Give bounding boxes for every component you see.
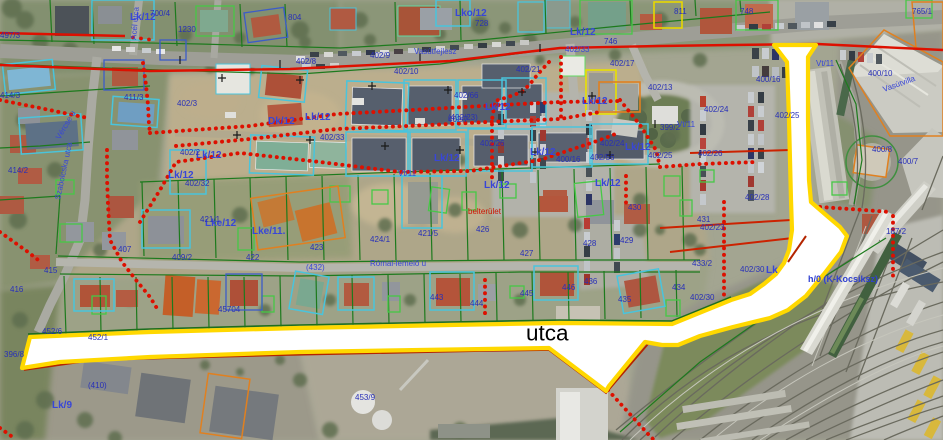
svg-text:Lk/9: Lk/9 (52, 400, 72, 411)
svg-text:Lk/12: Lk/12 (305, 112, 331, 123)
svg-text:400/16: 400/16 (556, 155, 581, 164)
svg-text:421/1: 421/1 (200, 215, 221, 224)
svg-text:700/4: 700/4 (150, 9, 171, 18)
svg-text:428: 428 (583, 239, 597, 248)
svg-text:414/2: 414/2 (8, 166, 29, 175)
svg-text:402/13: 402/13 (648, 83, 673, 92)
svg-text:444: 444 (470, 299, 484, 308)
svg-text:Vasútfejlesz: Vasútfejlesz (414, 47, 457, 56)
svg-text:396/8: 396/8 (4, 350, 25, 359)
svg-text:748: 748 (740, 7, 754, 16)
svg-text:402/30: 402/30 (690, 293, 715, 302)
svg-text:utca: utca (526, 321, 569, 346)
svg-text:436: 436 (584, 277, 598, 286)
svg-text:407: 407 (118, 245, 132, 254)
svg-text:416: 416 (10, 285, 24, 294)
svg-text:400/8: 400/8 (872, 145, 893, 154)
svg-text:423: 423 (310, 243, 324, 252)
svg-text:804: 804 (288, 13, 302, 22)
svg-text:424/1: 424/1 (370, 235, 391, 244)
svg-text:(410): (410) (88, 381, 107, 390)
svg-text:Dk/12: Dk/12 (268, 116, 295, 127)
svg-text:402/56: 402/56 (590, 153, 615, 162)
svg-text:Lko/12: Lko/12 (455, 8, 487, 19)
svg-text:402/10: 402/10 (394, 67, 419, 76)
svg-text:728: 728 (475, 19, 489, 28)
svg-text:402/33: 402/33 (565, 45, 590, 54)
svg-text:411/3: 411/3 (124, 93, 144, 102)
svg-text:433/2: 433/2 (692, 259, 713, 268)
svg-text:(432): (432) (306, 263, 325, 272)
svg-text:452/6: 452/6 (42, 327, 63, 336)
svg-text:409/2: 409/2 (172, 253, 193, 262)
svg-text:Lk/12: Lk/12 (485, 102, 511, 113)
svg-text:434: 434 (672, 283, 686, 292)
svg-text:Lk: Lk (766, 265, 778, 276)
svg-text:402/23: 402/23 (700, 223, 725, 232)
svg-text:402/28: 402/28 (745, 193, 770, 202)
svg-text:402/33: 402/33 (320, 133, 345, 142)
svg-text:429: 429 (620, 236, 634, 245)
svg-text:431: 431 (697, 215, 711, 224)
svg-text:400/7: 400/7 (898, 157, 919, 166)
svg-text:h/0 (K-Kocsiksz): h/0 (K-Kocsiksz) (808, 274, 878, 284)
svg-text:402/26: 402/26 (480, 139, 505, 148)
svg-text:402/26: 402/26 (698, 149, 723, 158)
svg-text:430: 430 (628, 203, 642, 212)
svg-text:1230: 1230 (178, 25, 196, 34)
svg-text:Római-lemelő u: Római-lemelő u (370, 259, 426, 268)
svg-text:402/17: 402/17 (610, 59, 635, 68)
svg-text:443: 443 (430, 293, 444, 302)
svg-text:402/30: 402/30 (740, 265, 765, 274)
svg-text:452/1: 452/1 (88, 333, 109, 342)
svg-text:435: 435 (618, 295, 632, 304)
svg-text:746: 746 (604, 37, 618, 46)
svg-text:446: 446 (562, 283, 576, 292)
svg-text:Lke/11.: Lke/11. (252, 226, 286, 237)
svg-text:Vt/11: Vt/11 (816, 59, 835, 68)
svg-text:427: 427 (520, 249, 534, 258)
svg-text:Lk/12: Lk/12 (530, 147, 556, 158)
svg-text:402/66: 402/66 (454, 91, 479, 100)
svg-text:402/25: 402/25 (648, 151, 673, 160)
svg-text:Lk/12: Lk/12 (595, 178, 621, 189)
svg-text:422: 422 (246, 253, 260, 262)
svg-text:Lk/12: Lk/12 (434, 153, 460, 164)
svg-text:402/21: 402/21 (516, 65, 541, 74)
svg-text:Lk/12: Lk/12 (582, 96, 608, 107)
svg-text:402/24: 402/24 (704, 105, 729, 114)
svg-text:426: 426 (476, 225, 490, 234)
svg-text:402/9: 402/9 (370, 51, 391, 60)
svg-text:497/3: 497/3 (0, 31, 21, 40)
svg-text:402/24: 402/24 (600, 139, 625, 148)
svg-text:402/8: 402/8 (296, 57, 317, 66)
svg-text:400/16: 400/16 (756, 75, 781, 84)
svg-text:400/10: 400/10 (868, 69, 893, 78)
svg-text:402/7: 402/7 (448, 115, 469, 124)
svg-text:765/1: 765/1 (912, 7, 933, 16)
svg-text:421/5: 421/5 (418, 229, 439, 238)
svg-text:Lk/12: Lk/12 (484, 180, 510, 191)
svg-text:445: 445 (520, 289, 534, 298)
svg-text:811: 811 (674, 7, 687, 16)
svg-text:45704: 45704 (218, 305, 241, 314)
svg-text:402/2: 402/2 (180, 148, 201, 157)
svg-text:Lk/12: Lk/12 (570, 27, 596, 38)
svg-text:402/3: 402/3 (177, 99, 198, 108)
svg-text:belterület: belterület (468, 207, 502, 216)
svg-text:Vt/11: Vt/11 (398, 169, 417, 178)
svg-text:453/9: 453/9 (355, 393, 376, 402)
svg-text:415: 415 (44, 266, 58, 275)
svg-text:187/2: 187/2 (886, 227, 907, 236)
svg-text:402/25: 402/25 (775, 111, 800, 120)
svg-text:Vt/11: Vt/11 (677, 120, 696, 129)
svg-text:414/3: 414/3 (0, 91, 21, 100)
svg-text:402/32: 402/32 (185, 179, 210, 188)
